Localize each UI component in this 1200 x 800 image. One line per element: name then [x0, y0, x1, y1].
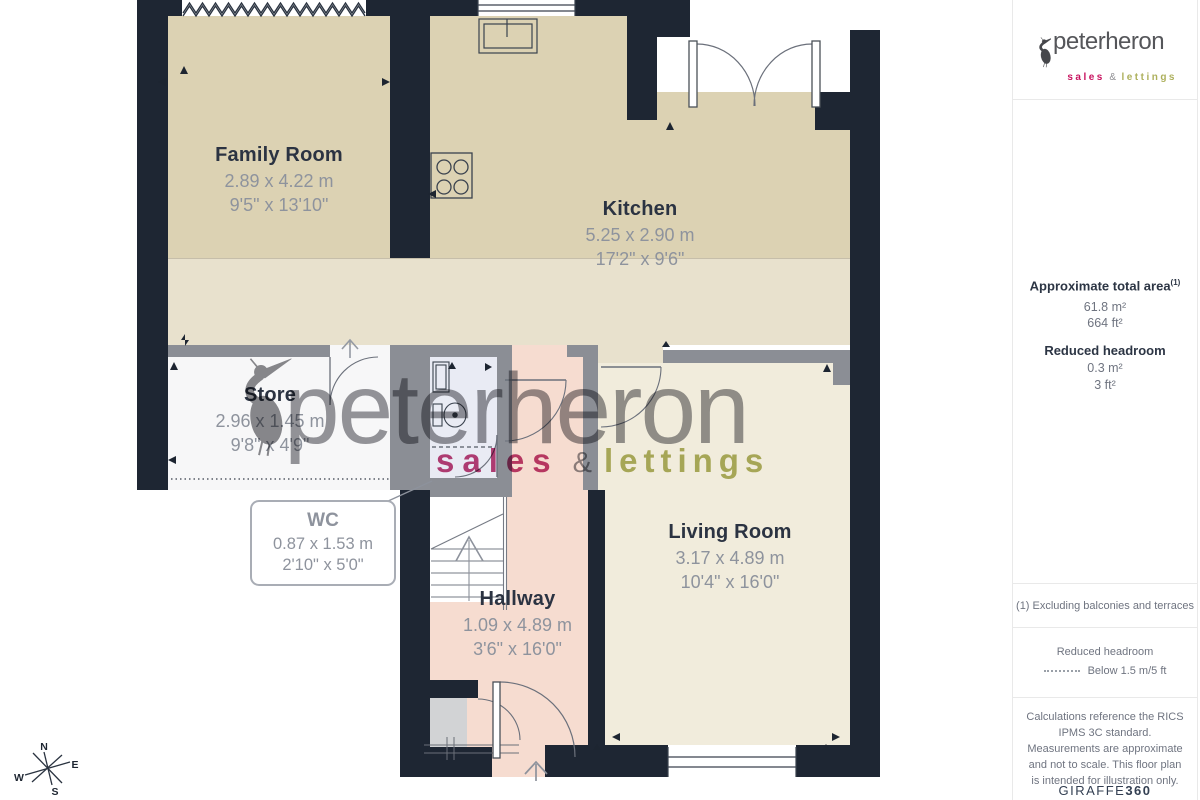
room-dim-imperial: 10'4" x 16'0"	[610, 570, 850, 594]
room-label-hallway: Hallway 1.09 x 4.89 m 3'6" x 16'0"	[425, 586, 610, 662]
wall-segment	[137, 0, 168, 490]
headroom-title: Reduced headroom	[1013, 343, 1197, 358]
brand-giraffe360: GIRAFFE360	[1013, 782, 1197, 800]
wall-segment	[390, 0, 430, 258]
divider	[1013, 697, 1197, 698]
agency-name: peterheron	[1053, 28, 1164, 56]
compass-n: N	[40, 741, 48, 753]
footnote-marker: (1)	[1171, 278, 1181, 287]
room-label-family: Family Room 2.89 x 4.22 m 9'5" x 13'10"	[168, 142, 390, 218]
zigzag-boundary	[183, 3, 365, 16]
room-dim-metric: 2.89 x 4.22 m	[168, 169, 390, 193]
closet-fill	[430, 698, 467, 747]
divider	[1013, 627, 1197, 628]
room-label-living: Living Room 3.17 x 4.89 m 10'4" x 16'0"	[610, 519, 850, 595]
room-dim-metric: 3.17 x 4.89 m	[610, 546, 850, 570]
wall-segment	[796, 745, 850, 777]
legend-entry: Below 1.5 m/5 ft	[1013, 665, 1197, 677]
room-dim-metric: 0.87 x 1.53 m	[252, 534, 394, 555]
brand-regular: GIRAFFE	[1058, 783, 1125, 798]
room-fill-door-opening	[598, 345, 663, 363]
wall-segment	[567, 345, 598, 357]
agency-logo: peterheron sales & lettings	[1037, 22, 1177, 85]
legend-desc: Below 1.5 m/5 ft	[1088, 665, 1167, 677]
room-label-kitchen: Kitchen 5.25 x 2.90 m 17'2" x 9'6"	[520, 196, 760, 272]
room-name: Kitchen	[520, 196, 760, 223]
wall-segment	[545, 745, 588, 777]
wc-callout-box: WC 0.87 x 1.53 m 2'10" x 5'0"	[250, 500, 396, 586]
tagline-sales: sales	[1067, 72, 1105, 83]
tagline-lettings: lettings	[1121, 72, 1177, 83]
wall-segment	[850, 30, 880, 777]
room-dim-metric: 5.25 x 2.90 m	[520, 223, 760, 247]
compass-s: S	[51, 786, 58, 798]
room-label-store: Store 2.96 x 1.45 m 9'8" x 4'9"	[168, 382, 372, 458]
room-fill-hall-strip	[512, 345, 583, 490]
wall-segment	[575, 0, 627, 16]
wall-segment	[168, 0, 182, 16]
room-dim-metric: 2.96 x 1.45 m	[168, 409, 372, 433]
wall-segment	[366, 0, 390, 16]
room-name: WC	[252, 509, 394, 534]
wall-segment	[833, 363, 850, 385]
info-sidebar: peterheron sales & lettings Approximate …	[1012, 0, 1198, 800]
room-dim-imperial: 2'10" x 5'0"	[252, 555, 394, 576]
room-name: Living Room	[610, 519, 850, 546]
wall-segment	[168, 345, 330, 357]
room-fill-kitchen	[817, 130, 850, 258]
agency-tagline: sales & lettings	[1051, 67, 1177, 85]
tagline-amp: &	[1109, 72, 1117, 83]
compass: N E W S	[14, 741, 78, 798]
room-dim-imperial: 9'5" x 13'10"	[168, 193, 390, 217]
wall-segment	[627, 0, 657, 120]
headroom-m2: 0.3 m²	[1013, 361, 1197, 375]
wall-segment	[663, 350, 850, 363]
wall-segment	[605, 745, 668, 777]
room-fill-wc	[430, 357, 497, 478]
room-dim-imperial: 9'8" x 4'9"	[168, 433, 372, 457]
brand-bold: 360	[1125, 783, 1151, 798]
total-area-ft2: 664 ft²	[1013, 316, 1197, 330]
room-dim-metric: 1.09 x 4.89 m	[425, 613, 610, 637]
wall-segment	[657, 0, 690, 37]
legend-title: Reduced headroom	[1013, 646, 1197, 658]
dotted-line-symbol	[1044, 670, 1080, 672]
wall-segment	[497, 357, 512, 478]
wall-segment	[390, 345, 512, 357]
heron-logo-icon	[1037, 22, 1051, 70]
disclaimer-text: Calculations reference the RICS IPMS 3C …	[1013, 710, 1197, 790]
floorplan-page: N E W S Family Room 2.89 x 4.22 m 9'5" x…	[0, 0, 1200, 800]
compass-w: W	[14, 772, 24, 784]
wall-segment	[390, 357, 430, 490]
headroom-ft2: 3 ft²	[1013, 378, 1197, 392]
divider	[1013, 583, 1197, 584]
room-name: Hallway	[425, 586, 610, 613]
compass-e: E	[71, 759, 78, 771]
wall-segment	[430, 680, 478, 698]
window-living	[668, 747, 796, 777]
wall-segment	[430, 0, 478, 16]
wall-segment	[583, 357, 598, 490]
room-fill-store-opening	[330, 345, 390, 357]
room-fill-family	[168, 16, 390, 258]
total-area-m2: 61.8 m²	[1013, 300, 1197, 314]
total-area-title: Approximate total area(1)	[1013, 278, 1197, 293]
room-name: Family Room	[168, 142, 390, 169]
divider	[1013, 99, 1197, 100]
wall-segment	[815, 92, 850, 130]
room-dim-imperial: 3'6" x 16'0"	[425, 637, 610, 661]
window-kitchen	[478, 0, 575, 16]
room-dim-imperial: 17'2" x 9'6"	[520, 247, 760, 271]
wall-segment	[430, 747, 492, 777]
footnote-text: (1) Excluding balconies and terraces	[1013, 600, 1197, 612]
room-name: Store	[168, 382, 372, 409]
